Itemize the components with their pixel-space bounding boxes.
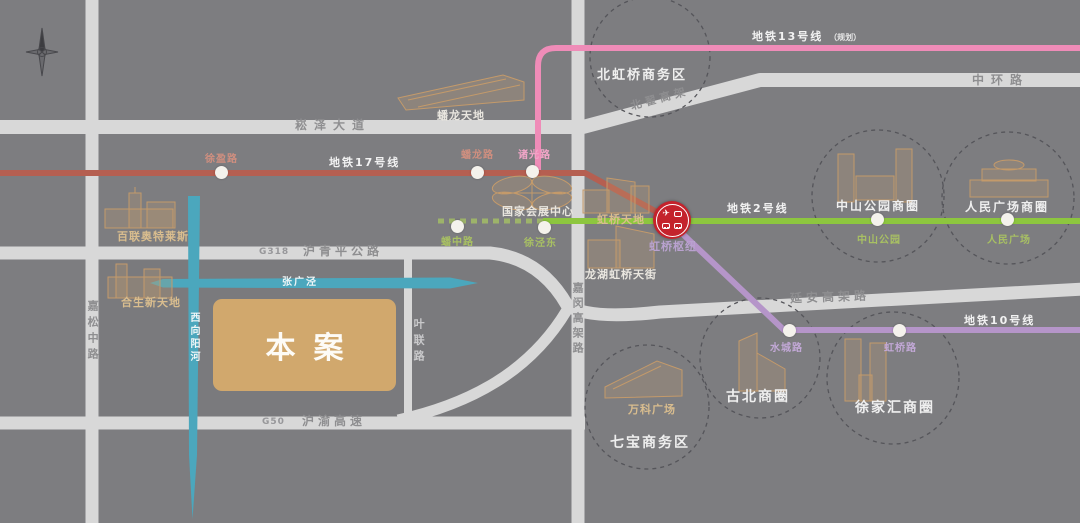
metro-label-line13-name: 地铁13号线 — [752, 30, 823, 43]
metro-label-line10: 地铁10号线 — [964, 315, 1035, 327]
road-label-huqingping: 沪青平公路 — [303, 245, 383, 258]
station-dot-shuicheng — [783, 324, 796, 337]
landmark-label-hongqiao-tiandi: 虹桥天地 — [597, 214, 645, 226]
station-dot-zhuguang — [526, 165, 539, 178]
landmark-label-hesheng: 合生新天地 — [121, 297, 181, 309]
district-label-xujiahui: 徐家汇商圈 — [855, 401, 935, 416]
road-code-g318: G318 — [259, 248, 289, 258]
river-label-xixiangyang: 西向阳河 — [188, 312, 199, 364]
hub-glyphs: ✈ — [660, 208, 684, 232]
station-label-panlong: 蟠龙路 — [461, 146, 494, 161]
hub-label: 虹桥枢纽 — [649, 241, 697, 253]
plane-icon: ✈ — [662, 210, 670, 219]
station-dot-hongqiaolu — [893, 324, 906, 337]
road-label-jiamin: 嘉闵高架路 — [571, 282, 583, 357]
road-code-g50: G50 — [262, 418, 285, 428]
road-label-yelian: 叶联路 — [412, 318, 424, 366]
station-dot-zhongshanpark — [871, 213, 884, 226]
compass-icon — [26, 28, 58, 76]
station-label-peoples-square: 人民广场 — [987, 231, 1031, 246]
landmark-label-bailian: 百联奥特莱斯 — [117, 231, 189, 243]
train-icon — [674, 211, 682, 217]
station-label-xujingdong: 徐泾东 — [524, 234, 557, 249]
district-label-qibao: 七宝商务区 — [610, 436, 690, 451]
station-dot-xujingdong — [538, 221, 551, 234]
building-vanke-plaza — [605, 361, 682, 398]
hongqiao-hub-icon: ✈ — [653, 201, 691, 239]
building-peoples-square — [970, 160, 1048, 197]
road-label-yanan: 延安高架路 — [790, 290, 870, 306]
metro-label-line13: 地铁13号线 （规划） — [752, 31, 861, 43]
building-xujiahui-towers — [845, 339, 886, 401]
road-label-songze: 崧泽大道 — [295, 119, 371, 132]
station-label-xuying: 徐盈路 — [205, 150, 238, 165]
building-longhu-paradise-walk — [588, 226, 654, 268]
district-label-zhongshanpark: 中山公园商圈 — [836, 200, 920, 213]
station-label-hongqiaolu: 虹桥路 — [884, 339, 917, 354]
station-dot-panzhong — [451, 220, 464, 233]
district-label-beihongqiao: 北虹桥商务区 — [597, 69, 687, 83]
metro-label-line17: 地铁17号线 — [329, 157, 400, 169]
river-label-zhangguangjing: 张广泾 — [282, 277, 318, 288]
metro-line13 — [538, 48, 1080, 172]
building-hongqiao-tiandi — [583, 178, 649, 213]
project-site-label: 本案 — [248, 323, 362, 367]
project-site: 本案 — [213, 299, 396, 391]
station-label-panzhong: 蟠中路 — [441, 233, 474, 248]
building-zhongshan-towers — [838, 149, 912, 202]
station-label-zhongshanpark: 中山公园 — [857, 231, 901, 246]
map-layers — [0, 0, 1080, 523]
station-dot-panlong — [471, 166, 484, 179]
station-dot-xuying — [215, 166, 228, 179]
district-label-peoples-square: 人民广场商圈 — [965, 201, 1049, 214]
station-label-shuicheng: 水城路 — [770, 339, 803, 354]
building-panlong-tiandi — [398, 75, 524, 110]
landmark-label-longhu: 龙湖虹桥天街 — [585, 269, 657, 281]
metro-icon — [674, 223, 682, 229]
road-label-zhonghuan: 中环路 — [972, 74, 1029, 87]
road-label-jiasong: 嘉松中路 — [86, 300, 98, 364]
landmark-label-vanke: 万科广场 — [628, 404, 676, 416]
metro-label-line2: 地铁2号线 — [727, 203, 789, 215]
metro-label-line13-suffix: （规划） — [829, 33, 861, 42]
bus-icon — [662, 223, 670, 229]
landmark-label-necc: 国家会展中心 — [502, 206, 574, 218]
station-dot-peoples-square — [1001, 213, 1014, 226]
location-map: 崧泽大道 北翟高架 中环路 G318 沪青平公路 G50 沪渝高速 延安高架路 … — [0, 0, 1080, 523]
landmark-label-panlong-tiandi: 蟠龙天地 — [437, 110, 485, 122]
station-label-zhuguang: 诸光路 — [518, 146, 551, 161]
district-label-gubei: 古北商圈 — [726, 390, 790, 405]
building-bailian-outlets — [105, 187, 175, 228]
road-label-huyu: 沪渝高速 — [302, 415, 366, 428]
